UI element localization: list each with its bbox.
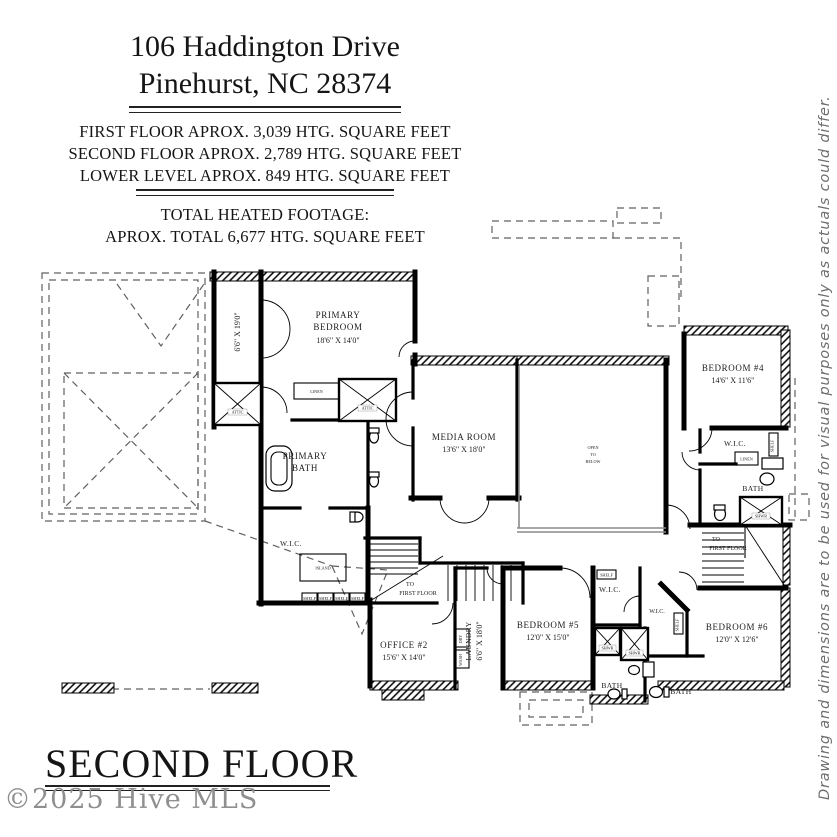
- sink: [629, 666, 640, 675]
- laundry-label: LAUNDRY: [464, 621, 473, 660]
- floor-title: SECOND FLOOR: [45, 740, 358, 787]
- floor-plan-drawing: ATTIC ATTIC SHWR SHWR SH: [0, 0, 837, 837]
- island-label: ISLAND: [315, 566, 330, 571]
- stairs-first-floor-label: FIRST FLOOR: [709, 546, 746, 552]
- washer-label: WASH: [458, 654, 463, 666]
- media-room-label: MEDIA ROOM: [432, 432, 496, 442]
- laundry-dim: 6'6" X 18'0": [475, 621, 484, 660]
- shower-bath4: SHWR: [740, 497, 782, 525]
- bedroom4-dim: 14'6" X 11'6": [712, 376, 755, 385]
- right-staircase: [702, 533, 744, 582]
- bath-label-bed5: BATH: [601, 681, 622, 690]
- open-to-below-label: OPEN: [588, 445, 599, 450]
- bedroom4-label: BEDROOM #4: [702, 363, 764, 373]
- shelf-label: SHELF: [600, 572, 613, 577]
- wic-label-bed4: W.I.C.: [724, 439, 746, 448]
- wic-label-bed6: W.I.C.: [649, 609, 665, 615]
- attic-label: ATTIC: [362, 406, 374, 411]
- primary-bedroom-label: BEDROOM: [313, 322, 362, 332]
- stairs-first-floor-label: FIRST FLOOR: [399, 591, 436, 597]
- bath-label-bed4: BATH: [742, 484, 763, 493]
- shower-bath5: SHWR: [595, 628, 620, 655]
- bedroom5-label: BEDROOM #5: [517, 620, 579, 630]
- open-to-below-label: BELOW: [586, 459, 601, 464]
- wic-label-primary: W.I.C.: [280, 539, 302, 548]
- office2-dim: 15'6" X 14'0": [382, 653, 425, 662]
- shower-label: SHWR: [628, 651, 640, 656]
- bedroom5-dim: 12'0" X 15'0": [526, 633, 569, 642]
- balcony-dim: 6'6" X 19'0": [233, 312, 242, 351]
- interior-walls: [214, 272, 790, 701]
- linen-label: LINEN: [310, 389, 323, 394]
- attic-box-closet: ATTIC: [339, 379, 396, 421]
- linen-label: LINEN: [740, 457, 753, 462]
- wic-label-bed5: W.I.C.: [599, 585, 621, 594]
- stairs-to-label: TO: [406, 582, 415, 588]
- bedroom6-label: BEDROOM #6: [706, 622, 768, 632]
- office2-label: OFFICE #2: [380, 640, 428, 650]
- primary-bath-label: BATH: [292, 463, 318, 473]
- floor-plan-page: 106 Haddington Drive Pinehurst, NC 28374…: [0, 0, 837, 837]
- media-room-dim: 13'6" X 18'0": [442, 445, 485, 454]
- toilet: [650, 687, 663, 698]
- attic-label: ATTIC: [232, 410, 244, 415]
- dryer-label: DRY: [458, 635, 463, 644]
- primary-bath-label: PRIMARY: [283, 451, 328, 461]
- shelf-label: SHELF: [335, 596, 348, 601]
- mls-watermark: ©2025 Hive MLS: [4, 784, 258, 815]
- primary-bedroom-dim: 18'6" X 14'0": [316, 336, 359, 345]
- shelf-label: SHELF: [303, 596, 316, 601]
- vanity: [762, 458, 783, 469]
- shower-label: SHWR: [755, 514, 767, 519]
- attic-box-balcony: ATTIC: [214, 383, 261, 425]
- door-swings: [261, 300, 712, 624]
- toilet: [608, 689, 620, 699]
- open-to-below-label: TO: [590, 452, 596, 457]
- bath-label-bed6: BATH: [670, 687, 691, 696]
- shelf-label: SHELF: [351, 596, 364, 601]
- shower-bath6: SHWR: [621, 628, 648, 660]
- stairs-to-label: TO: [712, 537, 721, 543]
- shower-label: SHWR: [601, 646, 613, 651]
- shelf-label: SHELF: [675, 618, 680, 631]
- center-staircase: [370, 544, 511, 601]
- vanity: [643, 662, 654, 677]
- shelf-label: SHELF: [319, 596, 332, 601]
- primary-bedroom-label: PRIMARY: [316, 310, 361, 320]
- bedroom6-dim: 12'0" X 12'6": [715, 635, 758, 644]
- shelf-label: SHELF: [770, 439, 775, 452]
- disclaimer-text: Drawing and dimensions are to be used fo…: [817, 90, 833, 800]
